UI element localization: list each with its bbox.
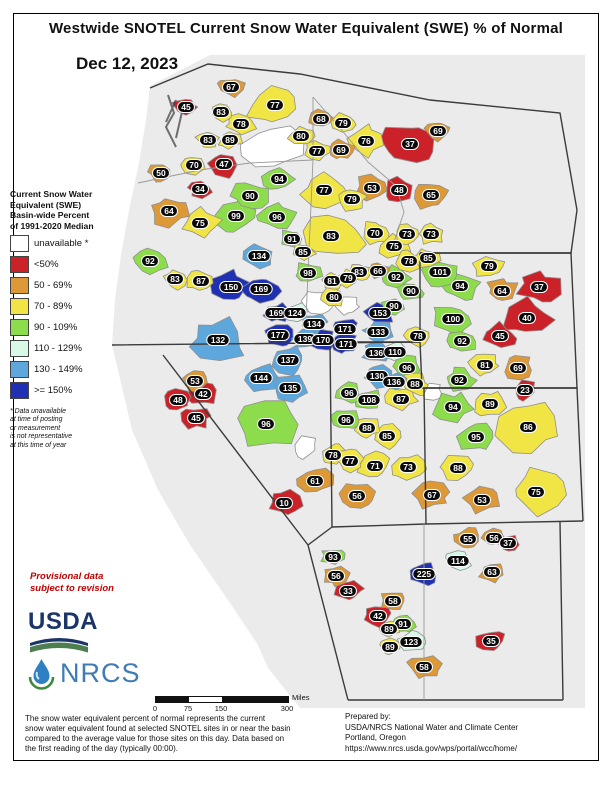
legend-swatch	[10, 235, 29, 252]
footer-description: The snow water equivalent percent of nor…	[25, 714, 345, 754]
legend-label: unavailable *	[34, 238, 88, 249]
legend-row: 50 - 69%	[10, 277, 120, 293]
legend-footnote: * Data unavailable at time of posting or…	[10, 408, 120, 450]
legend-label: <50%	[34, 259, 59, 270]
legend-row: 90 - 109%	[10, 319, 120, 335]
legend-swatch	[10, 319, 29, 336]
legend-row: 130 - 149%	[10, 361, 120, 377]
scale-bar-unit: Miles	[292, 693, 310, 702]
provisional-note: Provisional data subject to revision	[30, 571, 114, 595]
water-drop-icon	[26, 656, 57, 690]
map-date: Dec 12, 2023	[76, 54, 178, 74]
legend-label: 130 - 149%	[34, 364, 83, 375]
usda-logo: USDA	[28, 608, 98, 636]
legend-swatch	[10, 256, 29, 273]
legend-title: Current Snow Water Equivalent (SWE) Basi…	[10, 189, 120, 231]
footer-prepared-by: Prepared by: USDA/NRCS National Water an…	[345, 712, 595, 754]
legend-row: 70 - 89%	[10, 298, 120, 314]
nrcs-logo: NRCS	[26, 656, 141, 690]
legend-label: 90 - 109%	[34, 322, 77, 333]
usda-swoosh-icon	[28, 637, 92, 655]
scale-bar-ticks: 075150300	[155, 703, 325, 712]
snotel-map-page: 6745837778687976376983898077697047503494…	[0, 0, 612, 792]
legend: Current Snow Water Equivalent (SWE) Basi…	[10, 189, 120, 450]
legend-label: >= 150%	[34, 385, 72, 396]
legend-label: 110 - 129%	[34, 343, 82, 354]
scale-bar-tick: 75	[184, 704, 192, 713]
legend-label: 50 - 69%	[34, 280, 72, 291]
legend-swatch	[10, 382, 29, 399]
scale-bar: 075150300 Miles	[155, 696, 325, 712]
scale-bar-bar	[155, 696, 289, 703]
legend-row: >= 150%	[10, 382, 120, 398]
legend-swatch	[10, 277, 29, 294]
scale-bar-tick: 300	[281, 704, 294, 713]
legend-row: 110 - 129%	[10, 340, 120, 356]
legend-row: <50%	[10, 256, 120, 272]
legend-swatch	[10, 298, 29, 315]
legend-row: unavailable *	[10, 235, 120, 251]
page-title: Westwide SNOTEL Current Snow Water Equiv…	[13, 20, 599, 37]
legend-swatch	[10, 340, 29, 357]
legend-rows: unavailable *<50%50 - 69%70 - 89%90 - 10…	[10, 235, 120, 398]
nrcs-logo-text: NRCS	[60, 658, 141, 689]
legend-swatch	[10, 361, 29, 378]
scale-bar-tick: 150	[215, 704, 228, 713]
scale-bar-tick: 0	[153, 704, 157, 713]
legend-label: 70 - 89%	[34, 301, 72, 312]
